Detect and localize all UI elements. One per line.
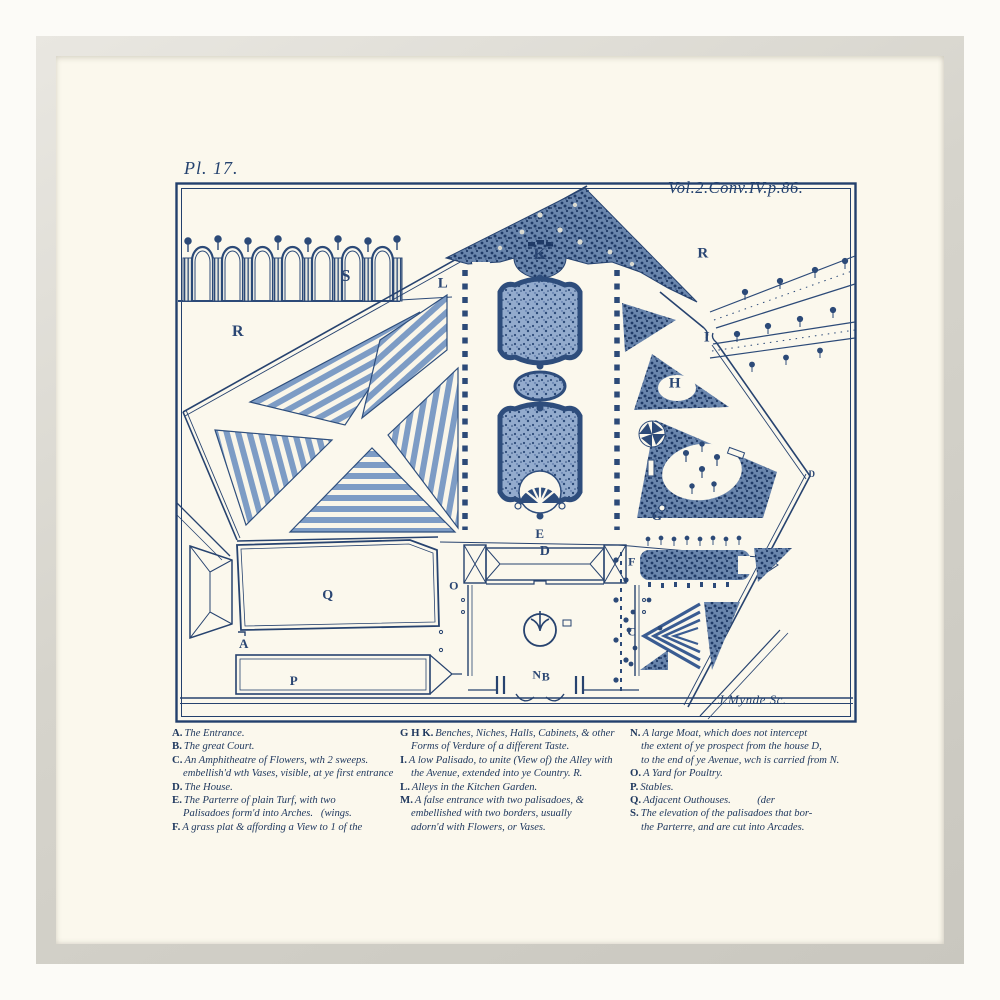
legend-line: B.The great Court. [172, 740, 394, 753]
arcade-trees [184, 235, 400, 252]
legend-key: Q. [630, 794, 643, 806]
plan-letter: H [669, 376, 681, 393]
pinwheel-plot [639, 421, 665, 447]
legend-line: G H K.Benches, Niches, Halls, Cabinets, … [400, 727, 624, 740]
legend-key: L. [400, 781, 412, 793]
arcade-elevation [178, 235, 452, 301]
legend-line: N.A large Moat, which does not intercept [630, 727, 868, 740]
legend-line: Q.Adjacent Outhouses. (der [630, 794, 868, 807]
legend-line: L.Alleys in the Kitchen Garden. [400, 781, 624, 794]
grass-plat-trees [646, 536, 742, 546]
plan-letter: K [534, 246, 547, 264]
legend: A.The Entrance.B.The great Court.C.An Am… [172, 727, 862, 834]
avenue-trees [734, 258, 847, 372]
legend-line: the extent of ye prospect from the house… [630, 740, 868, 753]
legend-key: P. [630, 781, 640, 793]
legend-key: E. [172, 794, 184, 806]
plan-letter: A [239, 636, 249, 652]
volume-reference: Vol.2.Conv.IV.p.86. [668, 178, 803, 198]
legend-key: A. [172, 727, 185, 739]
legend-key: N. [630, 727, 643, 739]
plan-letter: D [540, 544, 551, 560]
plan-letter: F [628, 555, 636, 570]
plan-letter: P [290, 673, 298, 689]
legend-line: D.The House. [172, 781, 394, 794]
legend-line: M.A false entrance with two palisadoes, … [400, 794, 624, 807]
plan-letter: I [704, 330, 710, 347]
gate-lodge [176, 502, 232, 638]
legend-key: O. [630, 767, 643, 779]
plan-letter: C [627, 625, 636, 640]
legend-key: S. [630, 807, 641, 819]
plan-letter: G [652, 508, 663, 524]
stables-p [236, 648, 462, 694]
plan-letter: R [232, 323, 244, 341]
plan-letter: O [449, 579, 459, 594]
legend-line: O.A Yard for Poultry. [630, 767, 868, 780]
plan-letter: B [542, 670, 551, 685]
legend-key: C. [172, 754, 185, 766]
plan-letter: Q [322, 588, 333, 604]
house-and-court [462, 545, 646, 694]
parterre [500, 275, 580, 520]
legend-line: Forms of Verdure of a different Taste. [400, 740, 624, 753]
legend-line: P.Stables. [630, 781, 868, 794]
goosefoot-groves [215, 295, 458, 532]
amphitheatre-c [627, 598, 740, 670]
legend-line: A.The Entrance. [172, 727, 394, 740]
plate-number: Pl. 17. [184, 158, 239, 179]
plan-letter: E [535, 526, 544, 542]
right-groves [622, 303, 777, 518]
legend-key: F. [172, 821, 182, 833]
legend-key: I. [400, 754, 409, 766]
legend-column: A.The Entrance.B.The great Court.C.An Am… [172, 727, 394, 834]
legend-key: B. [172, 740, 184, 752]
legend-line: embellished with two borders, usually [400, 807, 624, 820]
legend-line: adorn'd with Flowers, or Vases. [400, 821, 624, 834]
garden-plan-engraving [0, 0, 1000, 1000]
legend-line: the Avenue, extended into ye Country. R. [400, 767, 624, 780]
legend-key: M. [400, 794, 415, 806]
legend-column: N.A large Moat, which does not intercept… [630, 727, 868, 834]
legend-key: D. [172, 781, 185, 793]
legend-line: I.A low Palisado, to unite (View of) the… [400, 754, 624, 767]
engraver-signature: J.Mynde Sc. [718, 692, 787, 708]
legend-line: C.An Amphitheatre of Flowers, wth 2 swee… [172, 754, 394, 767]
plan-letter: S [341, 266, 351, 286]
legend-line: F.A grass plat & affording a View to 1 o… [172, 821, 394, 834]
plan-letter: D [809, 469, 816, 479]
avenue-to-country [710, 256, 855, 372]
plan-letter: N [532, 668, 541, 683]
engraved-garden-plan-print: Pl. 17. Vol.2.Conv.IV.p.86. J.Mynde Sc. … [0, 0, 1000, 1000]
legend-line: embellish'd wth Vases, visible, at ye fi… [172, 767, 394, 780]
plan-letter: R [697, 246, 708, 263]
legend-line: to the end of ye Avenue, wch is carried … [630, 754, 868, 767]
legend-line: the Parterre, and are cut into Arcades. [630, 821, 868, 834]
framed-print-photo: Pl. 17. Vol.2.Conv.IV.p.86. J.Mynde Sc. … [0, 0, 1000, 1000]
legend-line: S.The elevation of the palisadoes that b… [630, 807, 868, 820]
legend-key: G H K. [400, 727, 435, 739]
legend-line: E.The Parterre of plain Turf, with two [172, 794, 394, 807]
legend-line: Palisadoes form'd into Arches. (wings. [172, 807, 394, 820]
outbuildings-q [237, 540, 443, 636]
legend-column: G H K.Benches, Niches, Halls, Cabinets, … [400, 727, 624, 834]
plan-letter: L [438, 276, 449, 293]
